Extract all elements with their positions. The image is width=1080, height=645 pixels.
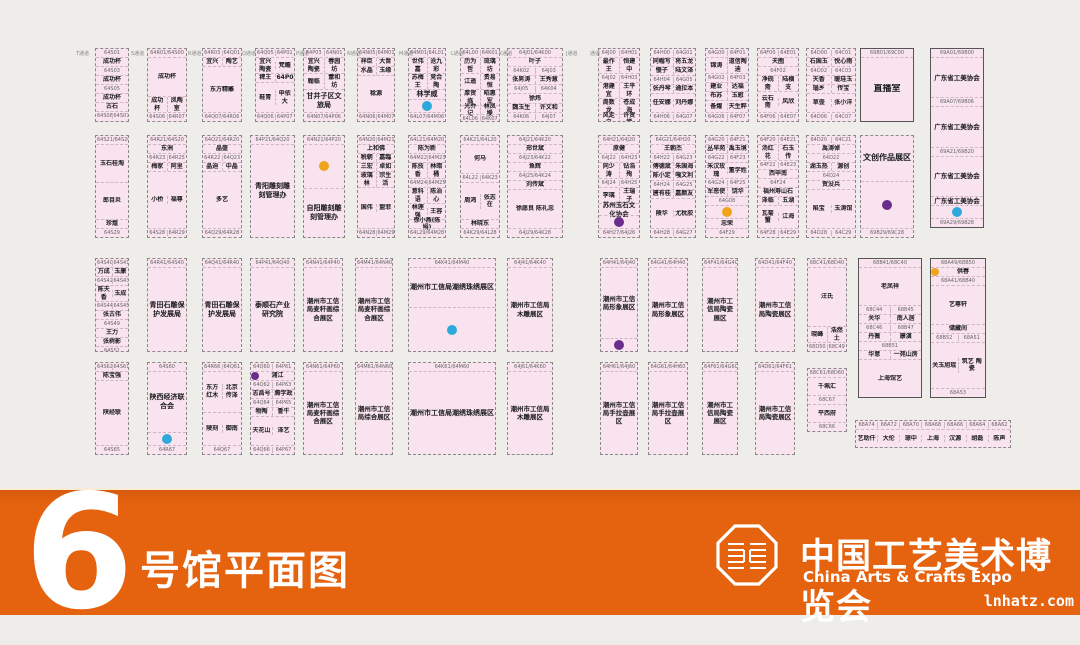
booth-number: 64D24	[807, 173, 855, 179]
booth-label: 薏和坊	[324, 74, 345, 89]
booth-label: 梅家	[148, 163, 167, 171]
booth-label: 成功杯	[96, 94, 128, 102]
booth-number: 64J25/64K24	[508, 173, 562, 179]
booth-block: 68C61/68D60千珮汇68C67平西府68C66	[807, 368, 847, 432]
booth-number: 64E29	[778, 230, 799, 236]
booth-label: 悦心雨	[831, 58, 856, 66]
booth-label: 三宏	[358, 163, 376, 171]
booth-number: 64R23	[148, 155, 167, 161]
booth-label: 陕西经济联合会	[148, 393, 186, 411]
booth-number: 64N20	[358, 137, 376, 143]
booth-number: 64J29/64K28	[508, 230, 562, 236]
booth-number: 64P07	[275, 114, 295, 120]
booth-label: 源创	[831, 163, 856, 171]
booth-number: 68A41/68B40	[931, 278, 985, 284]
blue-dot	[952, 207, 962, 217]
booth-label: 王力	[96, 329, 128, 337]
booth-number: 64K21/64L20	[461, 137, 499, 143]
booth-number: 64S49	[96, 321, 128, 327]
booth-number: 64S28	[148, 230, 167, 236]
booth-label: 平西府	[808, 410, 846, 418]
orange-dot	[722, 207, 732, 217]
booth-number: 64G21/64H20	[651, 137, 695, 143]
booth-number: 64R25	[167, 155, 187, 161]
booth-number: 64R22	[203, 155, 222, 161]
booth-number: 64P61	[272, 364, 294, 370]
booth-number: 64S43	[112, 278, 129, 284]
booth-block: 64S6264S61陈宝强陕经联64S65	[95, 362, 129, 455]
booth-label: 胡磊	[966, 435, 988, 443]
booth-block: 64H0064G01同帽写将五龙慢子陆文泽64H0464G05张丹琴通拉本任安娜…	[650, 48, 696, 122]
booth-block: 64R6664Q61东方红木北京传泽陵刻御南64Q67	[202, 362, 242, 455]
booth-label: 石玉传	[778, 145, 799, 160]
booth-block: 64J41/64K40潮州市工信局木雕展区	[507, 258, 553, 352]
booth-number: 64Q21/64R20	[203, 137, 241, 143]
booth-number: 64G05	[673, 77, 696, 83]
booth-block: 64M41/64N40潮州市工信局麦秆画综合展区	[355, 258, 393, 352]
booth-number: 64S03	[96, 68, 128, 74]
booth-number: 64E07	[778, 114, 799, 120]
aisle-label: M通道	[399, 50, 413, 57]
booth-number: 69A21/69B20	[931, 149, 983, 155]
booth-number: 68A51	[958, 335, 986, 341]
booth-number: 64N21/64P20	[304, 137, 344, 143]
booth-number: 64Q29/64R28	[203, 230, 241, 236]
booth-label: 许文和	[535, 104, 563, 112]
booth-number: 64G27	[673, 230, 696, 236]
booth-label: 潮州市工信局陶瓷展区	[703, 297, 737, 321]
booth-label: 林晓东	[461, 220, 499, 228]
booth-block: 64D41/64F40潮州市工信局陶瓷展区	[755, 258, 795, 352]
booth-label: 叶子	[508, 58, 562, 66]
booth-label: 东方精雕	[203, 86, 241, 94]
booth-label: 康演	[890, 333, 922, 341]
booth-number: 68B52	[931, 335, 958, 341]
booth-label: 玉康	[112, 268, 129, 276]
booth-number: 68C67	[808, 397, 846, 403]
booth-block: 64M0164L01世伟嘉沧九彩苏梅王竞合陶林学威64L07/64M06	[408, 48, 446, 122]
booth-number: 64Q23	[222, 155, 242, 161]
booth-number: 64H28	[651, 230, 673, 236]
booth-number: 64J41/64K40	[508, 260, 552, 266]
booth-label: 广东省工美协会	[931, 197, 983, 205]
booth-block: 64D0064C01石国玉悦心雨64D0264C03天香暖珪玉瑙乡传宝草壶张小洋…	[806, 48, 856, 122]
booth-number: 64G41/64H40	[649, 260, 687, 266]
booth-label: 张志在	[480, 194, 500, 209]
booth-block: 64J21/64K20郑世斌64J23/64K22鱼辉64J25/64K24刘传…	[507, 135, 563, 238]
booth-label: 鲁牛	[272, 408, 294, 416]
booth-label: 世伟嘉	[409, 58, 427, 73]
booth-label: 艺助仟	[856, 435, 877, 443]
booth-number: 64S51	[96, 348, 128, 352]
booth-block: 64R0364Q01宜兴陶艺东方精雕64Q07/64R06	[202, 48, 242, 122]
booth-label: 陕经联	[96, 409, 128, 417]
booth-number: 64H03	[619, 75, 640, 81]
aisle-label: S通道	[131, 50, 144, 57]
booth-number: 64H21/64J20	[599, 137, 639, 143]
booth-label: 潮州市工信局麦秆画综合展区	[356, 297, 392, 321]
aisle-label: J通道	[566, 50, 577, 57]
booth-number: 64F20	[758, 137, 778, 143]
booth-label: 国伟	[358, 204, 376, 212]
booth-block: 64R01/64S00成功杯成功杯凤陶室64S0664R07	[147, 48, 187, 122]
booth-label: 老凤祥	[859, 283, 921, 291]
booth-label: 古石	[96, 103, 128, 111]
booth-number: 64F22	[758, 162, 778, 168]
booth-number: 64M21	[376, 137, 395, 143]
booth-label: 丹薇	[859, 333, 890, 341]
booth-label: 璟中	[899, 435, 921, 443]
booth-label: 玉慰	[727, 92, 749, 100]
booth-number: 64M01	[376, 50, 395, 56]
booth-block: 64G21/64H20王朝杰64H2264G23傅德斌朱国海陈小定嘎文利64H2…	[650, 135, 696, 238]
booth-label: 林学威	[409, 90, 445, 99]
booth-label: 江海	[778, 213, 799, 221]
booth-number: 68A64	[966, 422, 988, 428]
booth-number: 64G61/64H60	[649, 364, 687, 370]
booth-label: 张树影	[96, 338, 128, 346]
booth-label: 慢子	[651, 67, 673, 75]
booth-block: 64N0564M01祥臣大晋水晶玉缘稔源64N0664M07	[357, 48, 395, 122]
booth-number: 64Q67	[203, 447, 241, 453]
booth-block: 64R21/64S20东洲64R2364R25梅家阿里小桥福尊64S2864R2…	[147, 135, 187, 238]
booth-label: 禹涛倬	[807, 145, 855, 153]
booth-block: 69A01/69B00广东省工美协会69A07/69B06广东省工美协会69A2…	[930, 48, 984, 228]
booth-number: 64S60	[148, 364, 186, 370]
booth-number: 68C61/68D60	[808, 370, 846, 376]
booth-label: 天香	[807, 76, 831, 84]
booth-label: 潮州市工信局潮绣珠绣展区	[409, 283, 495, 292]
booth-label: 64P05	[275, 74, 295, 82]
booth-block: 64F61/64G60潮州市工信局陶瓷展区	[702, 362, 738, 455]
booth-number: 64J23/64K22	[508, 155, 562, 161]
booth-label: 贺没兵	[807, 181, 855, 189]
aisle-label: K通道	[499, 50, 512, 57]
booth-label: 建业	[706, 83, 727, 91]
booth-label: 关玉旭琨	[931, 362, 958, 370]
booth-number: 64Q61	[222, 364, 242, 370]
booth-number: 64M22	[409, 155, 427, 161]
booth-block: 64Q0564P01宜兴陶瓷梵瞻稗王64P05鞋青申依大64Q0664P07	[255, 48, 295, 122]
booth-label: 琉璃坊	[480, 58, 500, 73]
booth-label: 陈治心	[427, 188, 446, 203]
booth-label: 陶艺	[222, 58, 242, 66]
booth-label: 潮州市工信局手拉壶展区	[649, 401, 687, 425]
booth-number: 64Q41/64R40	[203, 260, 241, 266]
booth-label: 御南	[222, 425, 242, 433]
booth-label: 大晋	[376, 58, 395, 66]
booth-label: 嘉臨	[376, 154, 395, 162]
booth-block: 64L21/64M20陈为新64M2264M23陈技香林暗桶64M2464M25…	[408, 135, 446, 238]
booth-label: 潮州市工信局陶瓷展区	[756, 405, 794, 421]
booth-label: 林暗桶	[427, 163, 446, 178]
booth-block: 64R41/64S40青田石雕保护发展局	[147, 258, 187, 352]
booth-label: 王朝杰	[651, 145, 695, 153]
booth-label: 珍煌	[96, 220, 128, 228]
booth-label: 郑世斌	[508, 145, 562, 153]
booth-label: 徐愿良 陈礼忠	[508, 205, 562, 213]
booth-label: 关华	[859, 315, 890, 323]
booth-number: 64F02	[758, 68, 798, 74]
booth-label: 中晶	[222, 163, 242, 171]
booth-label: 甘井子区文旅局	[304, 92, 344, 110]
booth-number: 64J61/64K60	[508, 364, 552, 370]
booth-block: 64F0064E01天囿64F02净砚斋陆横支云石斋风欣64F0664E07	[757, 48, 799, 122]
booth-label: 张古伟	[96, 311, 128, 319]
booth-label: 暖珪玉	[831, 76, 856, 84]
booth-number: 64Q66	[251, 447, 272, 453]
booth-label: 军恶使	[706, 188, 727, 196]
booth-label: 腾学政	[272, 390, 294, 398]
booth-number: 64L29/64M28	[409, 230, 445, 236]
booth-label: 陆文泽	[673, 67, 696, 75]
booth-number: 64S01	[96, 50, 128, 56]
booth-label: 南人居	[890, 315, 922, 323]
booth-number: 64Q05	[256, 50, 275, 56]
booth-number: 64K29/64L28	[461, 230, 499, 236]
booth-number: 64S05	[96, 86, 128, 92]
booth-label: 净砚斋	[758, 76, 778, 91]
booth-number: 64N01	[324, 50, 345, 56]
booth-block: 64K61/64M60潮州市工信局潮绣珠绣展区	[408, 362, 496, 455]
booth-number: 69A01/69B00	[931, 50, 983, 56]
booth-number: 64G08	[706, 198, 748, 204]
booth-block: 64J61/64K60潮州市工信局木雕展区	[507, 362, 553, 455]
booth-label: 潮州市工信局潮绣珠绣展区	[409, 409, 495, 418]
orange-dot	[319, 161, 329, 171]
booth-label: 成功杯	[96, 58, 128, 66]
booth-label: 钻浩殉	[619, 163, 640, 178]
booth-number: 64D20	[807, 137, 831, 143]
booth-label: 锦涛	[706, 62, 727, 70]
booth-label: 祥臣	[358, 58, 376, 66]
booth-label: 最作王	[599, 58, 619, 73]
booth-label: 文创作品展区	[861, 153, 913, 163]
booth-block: 64G0064F01锦涛道信陶迪64G0264F03建业达福布苏玉慰备燿天生粹6…	[705, 48, 749, 122]
booth-label: 道信陶迪	[727, 58, 749, 73]
booth-number: 64S40	[96, 260, 112, 266]
booth-number: 64H24	[651, 182, 673, 188]
booth-label: 鱼辉	[508, 163, 562, 171]
booth-label: 华意	[859, 351, 890, 359]
booth-number: 64C29	[831, 230, 856, 236]
booth-label: 苏梅王	[409, 74, 427, 89]
booth-label: 陵刻	[203, 425, 222, 433]
booth-number: 64J03	[535, 68, 563, 74]
booth-number: 64D22	[807, 155, 855, 161]
booth-label: 盟菲	[376, 204, 395, 212]
booth-number: 64L22	[461, 175, 480, 181]
booth-label: 潮州市工信局陶瓷展区	[703, 401, 737, 425]
booth-number: 68A72	[877, 422, 899, 428]
booth-label: 储藏间	[931, 325, 985, 333]
aisle-label: P通道	[296, 50, 309, 57]
booth-block: 64G2064F21丛早苑禹玉境64G2264F23朱汉玫瑰董学姓64G2464…	[705, 135, 749, 238]
booth-label: 玉石桂淘	[96, 160, 128, 168]
booth-label: 陆横支	[778, 76, 799, 91]
booth-number: 64P41/64Q40	[251, 260, 294, 266]
watermark: lnhatz.com	[984, 592, 1074, 610]
booth-label: 王平环	[619, 83, 640, 98]
booth-label: 朱国海	[673, 163, 696, 171]
booth-number: 64G22	[706, 155, 727, 161]
booth-number: 64K23	[480, 175, 500, 181]
booth-label: 潮州市工信局形象展区	[601, 295, 637, 311]
booth-number: 64D06	[807, 114, 831, 120]
booth-block: 64G61/64H60潮州市工信局手拉壶展区	[648, 362, 688, 455]
booth-number: 68A68	[921, 422, 943, 428]
booth-number: 64F24	[758, 180, 798, 186]
booth-number: 64E01	[778, 50, 799, 56]
booth-block: 64F41/64G40潮州市工信局陶瓷展区	[702, 258, 738, 352]
booth-label: 上海	[921, 435, 943, 443]
booth-label: 梵瞻	[275, 62, 295, 70]
booth-label: 唐有桂	[651, 190, 673, 198]
booth-label: 达福	[727, 83, 749, 91]
booth-label: 天生粹	[727, 103, 749, 111]
booth-block: 64K21/64L20何马64L2264K23周鸿张志在林晓东64K29/64L…	[460, 135, 500, 238]
booth-label: 福州寿山石	[758, 188, 798, 196]
booth-number: 64H41/64J40	[601, 260, 637, 266]
booth-label: 饶华	[727, 188, 749, 196]
booth-number: 68A70	[899, 422, 921, 428]
booth-label: 布苏	[706, 92, 727, 100]
booth-label: 天囿	[758, 58, 798, 66]
booth-block: 64N61/64P60潮州市工信局麦秆画综合展区	[303, 362, 343, 455]
booth-number: 64R29	[167, 230, 187, 236]
booth-number: 64P65	[272, 400, 294, 406]
booth-label: 汤红花	[758, 145, 778, 160]
booth-number: 64S06	[148, 114, 167, 120]
booth-number: 69B01/69C00	[861, 50, 913, 56]
booth-number: 64H04	[651, 77, 673, 83]
booth-number: 64E21	[778, 137, 799, 143]
booth-block: 64H21/64J20原健64J2264H23同少涛钻浩殉64J2464H25李…	[598, 135, 640, 238]
booth-label: 徐炜	[508, 95, 562, 103]
booth-number: 64D00	[807, 50, 831, 56]
booth-label: 通拉本	[673, 85, 696, 93]
booth-label: 一苑山房	[890, 351, 922, 359]
booth-number: 64Q07/64R06	[203, 114, 241, 120]
booth-number: 64R41/64S40	[148, 260, 186, 266]
booth-block: 64D2064C21禹涛倬64D22湖玉热源创64D24贺没兵陷宝玉涛馆64D2…	[806, 135, 856, 238]
booth-number: 64H06	[651, 114, 673, 120]
booth-block: 64K41/64M40潮州市工信局潮绣珠绣展区	[408, 258, 496, 352]
booth-label: 志昌号	[251, 390, 272, 398]
booth-number: 64G00	[706, 50, 727, 56]
booth-number: 64Q01	[222, 50, 242, 56]
booth-label: 福尊	[167, 196, 187, 204]
booth-label: 傅德斌	[651, 163, 673, 171]
booth-block: 64H61/64J60潮州市工信局手拉壶展区	[600, 362, 638, 455]
booth-number: 64J21/64K20	[508, 137, 562, 143]
orange-dot	[931, 268, 939, 276]
booth-number: 64F25	[727, 180, 749, 186]
booth-block: 64H41/64J40潮州市工信局形象展区	[600, 258, 638, 352]
booth-number: 64F03	[727, 75, 749, 81]
booth-number: 64Q06	[256, 114, 275, 120]
booth-label: 稗王	[256, 74, 275, 82]
booth-number: 68B41/68C40	[859, 260, 921, 266]
booth-number: 64H61/64J60	[601, 364, 637, 370]
booth-number: 68A62	[988, 422, 1010, 428]
booth-block: 64F2064E21汤红花石玉传64F2264E23西申南64F24福州寿山石泽…	[757, 135, 799, 238]
booth-label: 嘉颜友	[673, 190, 696, 198]
booth-label: 晶盛	[203, 145, 241, 153]
booth-number: 64M24	[409, 180, 427, 186]
booth-number: 64F28	[758, 230, 778, 236]
booth-number: 64S41	[112, 260, 129, 266]
booth-block: 64J01/64K00叶子64K0264J03张男涛王秀慧64J0564K04徐…	[507, 48, 563, 122]
booth-number: 64F23	[727, 155, 749, 161]
expo-title-en: China Arts & Crafts Expo	[803, 568, 1012, 586]
booth-label: 浩然土	[827, 327, 847, 342]
booth-label: 刘传斌	[508, 181, 562, 189]
booth-number: 64M07	[376, 114, 395, 120]
booth-label: 周鸿	[461, 197, 480, 205]
booth-number: 64H22	[651, 155, 673, 161]
booth-label: 宜兴陶瓷	[256, 58, 275, 73]
booth-number: 64M23	[427, 155, 446, 161]
booth-number: 64E23	[778, 162, 799, 168]
booth-label: 备燿	[706, 103, 727, 111]
booth-label: 原健	[599, 145, 639, 153]
booth-number: 68C41/68D40	[808, 260, 846, 266]
booth-block: 64P0364N01宜兴陶瓷春园坊翰临薏和坊甘井子区文旅局64N07/64P06	[303, 48, 345, 122]
purple-dot	[614, 340, 624, 350]
booth-block: 64S4064S41万成玉康64S4264S43陈天香玉成64S4464S45张…	[95, 258, 129, 352]
booth-number: 64F01	[727, 50, 749, 56]
booth-number: 68A74	[856, 422, 877, 428]
booth-block: 68B41/68C40老凤祥68C4468B45关华南人居68C4668B47丹…	[858, 258, 922, 398]
booth-number: 64S61	[112, 364, 129, 370]
booth-label: 恒建中	[619, 58, 640, 73]
booth-block: 文创作品展区69B29/69C28	[860, 135, 914, 238]
booth-label: 万成	[96, 268, 112, 276]
booth-label: 艺尊轩	[931, 301, 985, 309]
booth-number: 64L21/64M20	[409, 137, 445, 143]
booth-number: 64M29	[376, 230, 395, 236]
booth-number: 64S44	[96, 303, 112, 309]
booth-number: 64S42	[96, 278, 112, 284]
booth-number: 64D28	[807, 230, 831, 236]
booth-label: 瓦菊蟹	[758, 210, 778, 225]
booth-number: 64J07	[535, 114, 563, 120]
aisle-label: R通道	[188, 50, 201, 57]
booth-block: 69B01/69C00直播室	[860, 48, 914, 122]
booth-number: 64K41/64M40	[409, 260, 495, 266]
booth-label: 历为哲	[461, 58, 480, 73]
booth-label: 玻璃林	[358, 172, 376, 187]
booth-number: 64G24	[706, 180, 727, 186]
booth-number: 64S21/64S20	[96, 137, 128, 143]
booth-label: 多艺	[203, 196, 241, 204]
booth-number: 68A66	[944, 422, 966, 428]
booth-label: 宜兴陶瓷	[304, 58, 324, 73]
booth-number: 64K06	[508, 114, 535, 120]
bottom-banner: 6 号馆平面图 中国工艺美术博览会 China Arts & Crafts Ex…	[0, 488, 1080, 615]
booth-label: 小桥	[148, 196, 167, 204]
booth-number: 64C03	[831, 68, 856, 74]
booth-label: 尤枕胶	[673, 210, 696, 218]
booth-number: 64C21	[831, 137, 856, 143]
booth-label: 自阳雕刻雕刻管理办	[304, 204, 344, 222]
booth-block: 64S01成功杯64S03成功杯64S05成功杯古石64S0664S07	[95, 48, 129, 122]
booth-block: 64G41/64H40潮州市工信局形象展区	[648, 258, 688, 352]
booth-label: 北京传泽	[222, 384, 242, 399]
booth-number: 64R21/64S20	[148, 137, 186, 143]
booth-label: 王秀慧	[535, 76, 563, 84]
